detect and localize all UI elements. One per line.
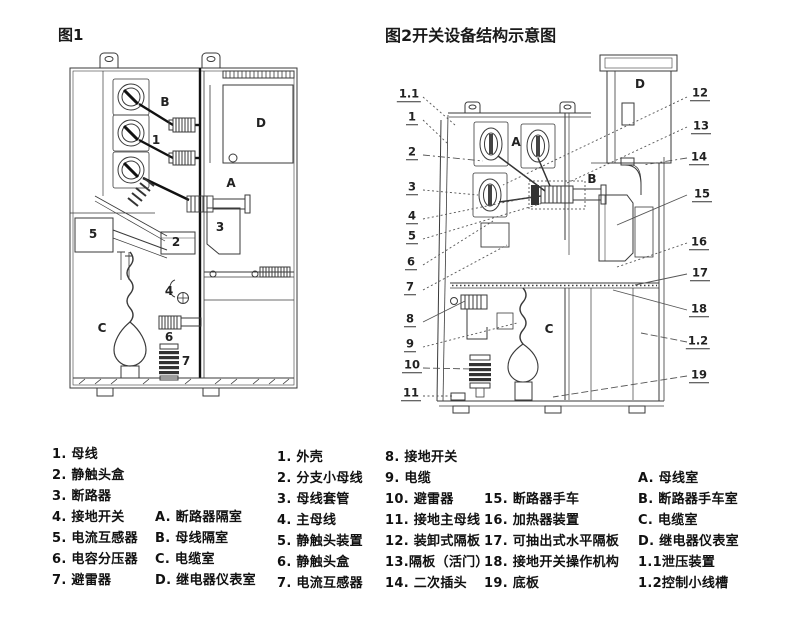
fig2-callout-16: 16 <box>689 236 709 250</box>
legend-item: D. 继电器仪表室 <box>638 531 739 552</box>
lifting-lug-icon <box>100 53 220 68</box>
fig2-callout-13: 13 <box>691 120 711 134</box>
legend-item: 7. 避雷器 <box>52 570 138 591</box>
legend-item: 16. 加热器装置 <box>484 510 619 531</box>
legend-item: 13.隔板（活门） <box>385 552 489 573</box>
legend-item: 14. 二次插头 <box>385 573 489 594</box>
legend-item: 3. 母线套管 <box>277 489 363 510</box>
fig2-callout-2: 2 <box>406 146 418 160</box>
figure1-drawing: B 1 D A 3 2 5 4 C 6 7 <box>55 48 315 403</box>
legend-item: 7. 电流互感器 <box>277 573 363 594</box>
fig1-part-label-5: 5 <box>89 228 97 240</box>
legend-item: 8. 接地开关 <box>385 447 489 468</box>
legend-item: C. 电缆室 <box>155 549 256 570</box>
fig2-callout-3: 3 <box>406 181 418 195</box>
fig2-callout-5: 5 <box>406 230 418 244</box>
legend-fig2-rooms: A. 母线室 B. 断路器手车室 C. 电缆室 D. 继电器仪表室 1.1泄压装… <box>638 468 739 594</box>
fig2-callout-6: 6 <box>405 256 417 270</box>
legend-item: A. 断路器隔室 <box>155 507 256 528</box>
legend-item: 17. 可抽出式水平隔板 <box>484 531 619 552</box>
fig2-callout-9: 9 <box>404 338 416 352</box>
fig2-callout-18: 18 <box>689 303 709 317</box>
cable-icon <box>127 252 133 322</box>
fig1-room-label-C: C <box>98 322 107 334</box>
legend-item: 3. 断路器 <box>52 486 138 507</box>
fig2-callout-4: 4 <box>406 210 418 224</box>
wall-bushing-icon <box>169 118 195 165</box>
legend-item: 19. 底板 <box>484 573 619 594</box>
legend-item: 12. 装卸式隔板 <box>385 531 489 552</box>
figure2-title: 图2开关设备结构示意图 <box>385 22 556 46</box>
fig1-room-label-B: B <box>160 96 169 108</box>
legend-item: 5. 静触头装置 <box>277 531 363 552</box>
arrester-icon <box>159 344 179 380</box>
document-page: 图1 图2开关设备结构示意图 <box>0 0 790 624</box>
legend-item: 9. 电缆 <box>385 468 489 489</box>
fig2-callout-14: 14 <box>689 151 709 165</box>
fig1-room-label-D: D <box>256 117 266 129</box>
fig2-callout-19: 19 <box>689 369 709 383</box>
legend-item: 1.1泄压装置 <box>638 552 739 573</box>
legend-item: B. 断路器手车室 <box>638 489 739 510</box>
fig2-callout-11: 11 <box>401 387 421 401</box>
fig2-room-label-B: B <box>587 173 596 185</box>
fig1-part-label-2: 2 <box>172 236 180 248</box>
fig2-callout-12: 12 <box>690 87 710 101</box>
legend-item: 5. 电流互感器 <box>52 528 138 549</box>
arrester-icon <box>469 355 491 397</box>
fig1-room-label-A: A <box>226 177 235 189</box>
legend-item: 4. 接地开关 <box>52 507 138 528</box>
ribbed-insulator-icon <box>128 178 154 206</box>
fig1-part-label-4: 4 <box>165 285 173 297</box>
fig2-callout-7: 7 <box>404 281 416 295</box>
legend-item: B. 母线隔室 <box>155 528 256 549</box>
lifting-lug-icon <box>465 102 575 113</box>
legend-item: 1.2控制小线槽 <box>638 573 739 594</box>
legend-item: 2. 静触头盒 <box>52 465 138 486</box>
legend-fig2-parts-1-7: 1. 外壳 2. 分支小母线 3. 母线套管 4. 主母线 5. 静触头装置 6… <box>277 447 363 594</box>
legend-item: A. 母线室 <box>638 468 739 489</box>
fig2-callout-1-2: 1.2 <box>686 335 710 349</box>
legend-item: 10. 避雷器 <box>385 489 489 510</box>
legend-item: 1. 外壳 <box>277 447 363 468</box>
legend-item: 4. 主母线 <box>277 510 363 531</box>
fig2-room-label-D: D <box>635 78 645 90</box>
fig2-room-label-C: C <box>545 323 554 335</box>
figure1-title: 图1 <box>58 24 83 45</box>
legend-item: C. 电缆室 <box>638 510 739 531</box>
legend-fig1-parts: 1. 母线 2. 静触头盒 3. 断路器 4. 接地开关 5. 电流互感器 6.… <box>52 444 138 591</box>
fig1-part-label-7: 7 <box>182 355 190 367</box>
legend-item: 15. 断路器手车 <box>484 489 619 510</box>
fig2-callout-1: 1 <box>406 111 418 125</box>
fig2-callout-15: 15 <box>692 188 712 202</box>
bushing-icon <box>113 79 149 188</box>
legend-item: D. 继电器仪表室 <box>155 570 256 591</box>
fig1-part-label-6: 6 <box>165 331 173 343</box>
legend-item: 6. 电容分压器 <box>52 549 138 570</box>
legend-fig1-rooms: A. 断路器隔室 B. 母线隔室 C. 电缆室 D. 继电器仪表室 <box>155 507 256 591</box>
legend-item: 1. 母线 <box>52 444 138 465</box>
fig2-callout-1-1: 1.1 <box>397 88 421 102</box>
figure1-lineart <box>55 48 315 403</box>
legend-fig2-parts-15-19: 15. 断路器手车 16. 加热器装置 17. 可抽出式水平隔板 18. 接地开… <box>484 489 619 594</box>
legend-item: 2. 分支小母线 <box>277 468 363 489</box>
legend-item: 6. 静触头盒 <box>277 552 363 573</box>
fig1-part-label-3: 3 <box>216 221 224 233</box>
legend-item: 18. 接地开关操作机构 <box>484 552 619 573</box>
legend-item: 11. 接地主母线 <box>385 510 489 531</box>
cable-icon <box>520 288 526 344</box>
fig2-callout-8: 8 <box>404 313 416 327</box>
legend-fig2-parts-8-14: 8. 接地开关 9. 电缆 10. 避雷器 11. 接地主母线 12. 装卸式隔… <box>385 447 489 594</box>
figure2-lineart <box>395 45 730 425</box>
fig2-callout-17: 17 <box>690 267 710 281</box>
fig1-part-label-1: 1 <box>152 134 160 146</box>
fig2-callout-10: 10 <box>402 359 422 373</box>
fig2-room-label-A: A <box>511 136 520 148</box>
figure2-drawing: A B C D 1.1 1 2 3 4 5 6 7 8 9 10 11 12 1… <box>395 45 730 425</box>
